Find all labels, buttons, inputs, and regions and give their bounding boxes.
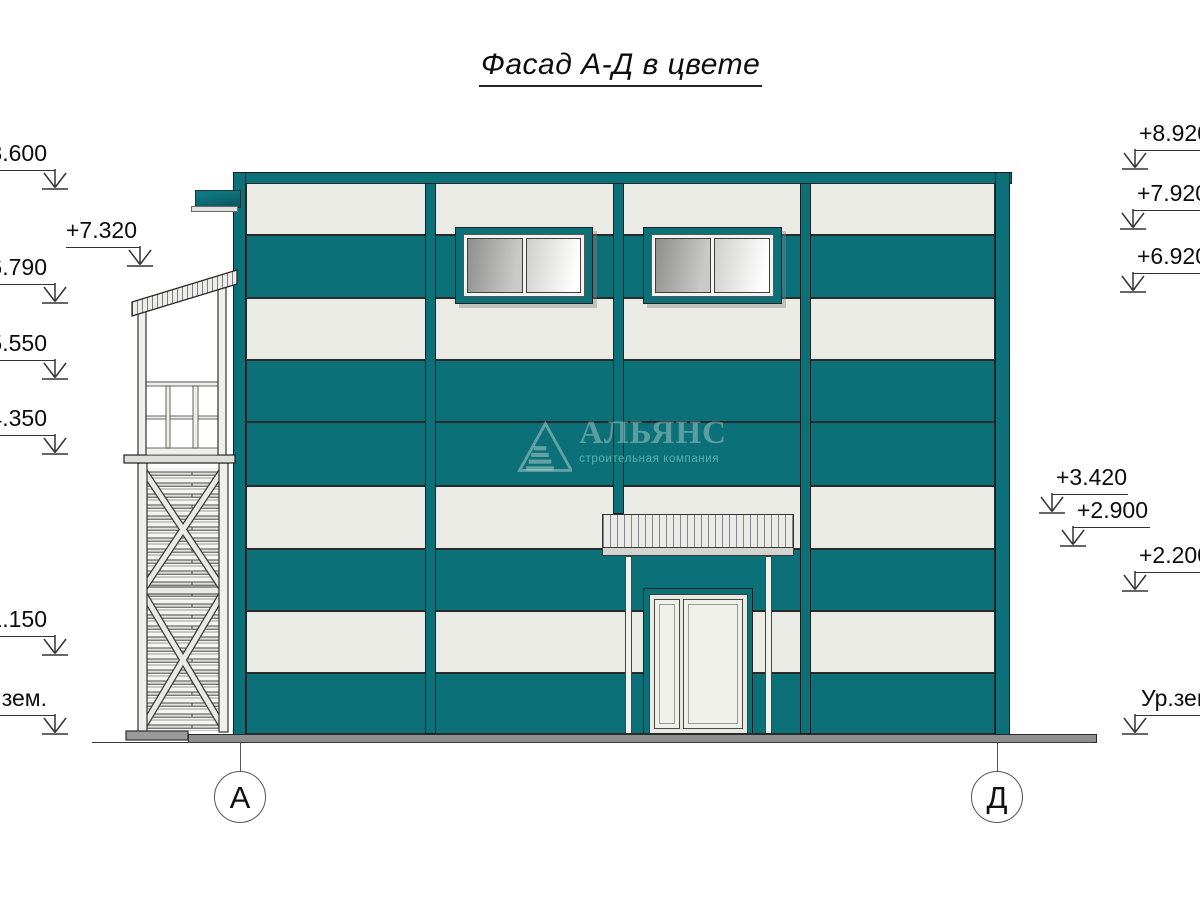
elevation-arrow-icon — [1116, 714, 1154, 738]
axis-marker-d: Д — [971, 771, 1023, 823]
door-leaf-narrow — [654, 599, 680, 729]
canopy-fascia — [602, 547, 794, 556]
logo-pyramid-icon — [517, 416, 572, 478]
elevation-label: +7.920 — [1137, 180, 1200, 207]
elevation-mark: +7.920 — [1133, 183, 1200, 211]
elevation-arrow-icon — [36, 359, 74, 383]
corner-pilaster-right — [995, 172, 1010, 735]
elevation-label: +4.350 — [0, 405, 47, 432]
elevation-arrow-icon — [1054, 526, 1092, 550]
canopy-post — [765, 556, 772, 734]
pilaster — [425, 183, 436, 734]
door-leaf-panel — [659, 604, 675, 724]
elevation-label: +1.150 — [0, 606, 47, 633]
elevation-arrow-icon — [36, 283, 74, 307]
elevation-mark-ground: Ур.зем. — [0, 688, 55, 716]
elevation-label: +5.550 — [0, 330, 47, 357]
elevation-label: +8.920 — [1139, 120, 1200, 147]
elevation-label: Ур.зем. — [1141, 685, 1200, 712]
elevation-mark: +2.900 — [1073, 500, 1150, 528]
stair-tower — [120, 262, 250, 748]
elevation-mark-ground: Ур.зем. — [1135, 688, 1200, 716]
axis-marker-a: А — [214, 771, 266, 823]
elevation-label: +2.900 — [1077, 497, 1148, 524]
elevation-mark: +6.790 — [0, 257, 55, 285]
pilaster — [800, 183, 811, 734]
elevation-mark: +6.920 — [1133, 246, 1200, 274]
elevation-arrow-icon — [1116, 149, 1154, 173]
elevation-arrow-icon — [36, 714, 74, 738]
elevation-label: Ур.зем. — [0, 685, 47, 712]
elevation-arrow-icon — [1114, 272, 1152, 296]
window-frame — [463, 234, 585, 297]
axis-label: А — [230, 780, 251, 815]
ground-line — [92, 742, 1093, 743]
facade-stripe — [246, 611, 995, 673]
elevation-mark: +7.320 — [66, 220, 140, 248]
elevation-mark: +8.600 — [0, 143, 55, 171]
elevation-label: +6.920 — [1137, 243, 1200, 270]
door-leaf-panel — [688, 604, 738, 724]
facade-drawing: Фасад А-Д в цвете — [0, 0, 1200, 900]
elevation-arrow-icon — [121, 246, 159, 270]
window-pane — [526, 238, 582, 293]
elevation-label: +7.320 — [66, 217, 137, 244]
axis-line — [997, 743, 998, 772]
door-frame — [649, 594, 748, 734]
elevation-label: +3.420 — [1056, 464, 1127, 491]
roof-pipe-board — [191, 206, 238, 212]
window-frame — [651, 234, 774, 297]
logo-company-name: АЛЬЯНС — [579, 416, 727, 451]
window — [455, 227, 593, 304]
elevation-mark: +1.150 — [0, 609, 55, 637]
elevation-arrow-icon — [1114, 209, 1152, 233]
logo-text: АЛЬЯНС строительная компания — [579, 416, 727, 465]
elevation-arrow-icon — [1116, 571, 1154, 595]
door-leaf-wide — [683, 599, 743, 729]
elevation-arrow-icon — [1033, 493, 1071, 517]
elevation-arrow-icon — [36, 635, 74, 659]
elevation-label: +6.790 — [0, 254, 47, 281]
watermark-logo: АЛЬЯНС строительная компания — [517, 416, 727, 482]
elevation-mark: +5.550 — [0, 333, 55, 361]
elevation-label: +8.600 — [0, 140, 47, 167]
elevation-mark: +3.420 — [1052, 467, 1128, 495]
axis-line — [240, 743, 241, 772]
elevation-mark: +2.200 — [1135, 545, 1200, 573]
window-pane — [655, 238, 711, 293]
axis-label: Д — [987, 780, 1008, 815]
elevation-mark: +4.350 — [0, 408, 55, 436]
entrance-canopy — [602, 514, 794, 548]
elevation-label: +2.200 — [1139, 542, 1200, 569]
logo-tagline: строительная компания — [579, 453, 727, 465]
elevation-mark: +8.920 — [1135, 123, 1200, 151]
facade-stripe — [246, 673, 995, 734]
facade-stripe — [246, 549, 995, 611]
window-pane — [467, 238, 523, 293]
canopy-post — [625, 556, 632, 734]
drawing-title: Фасад А-Д в цвете — [479, 48, 762, 87]
window-pane — [714, 238, 770, 293]
elevation-arrow-icon — [36, 434, 74, 458]
window — [643, 227, 782, 304]
elevation-arrow-icon — [36, 169, 74, 193]
